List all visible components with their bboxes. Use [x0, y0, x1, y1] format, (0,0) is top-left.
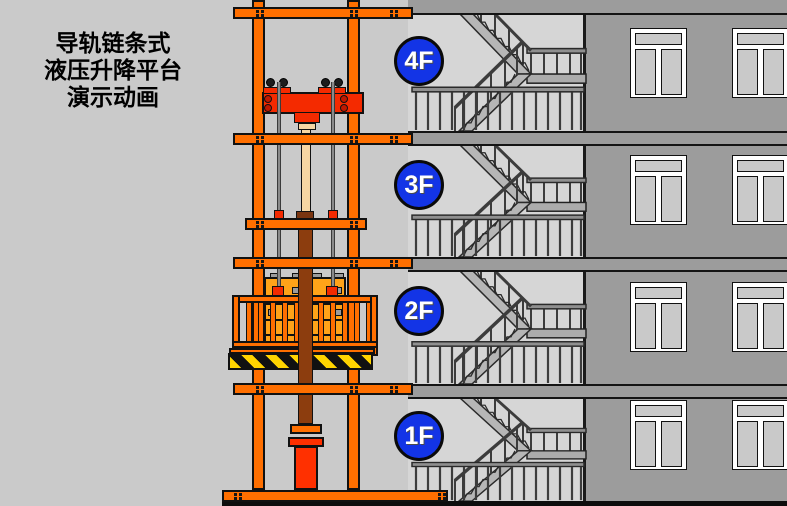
floor-badge-4f: 4F: [394, 36, 444, 86]
window: [630, 155, 687, 225]
floor-badge-label: 3F: [404, 171, 433, 200]
floor-slab: [408, 384, 787, 399]
window: [732, 28, 787, 98]
bolt-cluster: [350, 221, 353, 224]
floor-badge-3f: 3F: [394, 160, 444, 210]
mast-beam-2f: [233, 257, 413, 269]
bolt-cluster: [256, 221, 259, 224]
mast-base-beam: [222, 490, 448, 502]
mast-column-left: [252, 0, 265, 490]
mast-beam-top: [233, 7, 413, 19]
base-cylinder: [294, 446, 318, 490]
bolt-cluster: [350, 260, 353, 263]
chain-sprocket-icon: [321, 78, 330, 87]
beam-bolt: [340, 95, 348, 103]
window: [732, 400, 787, 470]
bolt-cluster: [438, 493, 441, 496]
window: [732, 155, 787, 225]
bolt-cluster: [256, 260, 259, 263]
floor-slab: [408, 0, 787, 15]
beam-bolt: [264, 95, 272, 103]
bolt-cluster: [350, 386, 353, 389]
window: [630, 400, 687, 470]
piston-flange: [298, 123, 316, 130]
mast-beam-mid: [245, 218, 367, 230]
floor-badge-label: 4F: [404, 47, 433, 76]
chain-anchor: [326, 286, 338, 296]
page-title: 导轨链条式 液压升降平台 演示动画: [18, 30, 208, 111]
floor-badge-2f: 2F: [394, 286, 444, 336]
bolt-cluster: [350, 10, 353, 13]
bolt-cluster: [350, 136, 353, 139]
floor-slab: [408, 257, 787, 272]
chain-sprocket-icon: [266, 78, 275, 87]
floor-badge-1f: 1F: [394, 411, 444, 461]
title-line-3: 演示动画: [18, 84, 208, 111]
bolt-cluster: [390, 260, 393, 263]
floor-slab: [408, 131, 787, 146]
piston-clamp: [294, 112, 320, 123]
bolt-cluster: [256, 10, 259, 13]
cylinder-base-clamp: [290, 424, 322, 434]
bolt-cluster: [256, 136, 259, 139]
floor-badge-label: 2F: [404, 297, 433, 326]
chain-sprocket-icon: [334, 78, 343, 87]
bolt-cluster: [390, 136, 393, 139]
bolt-cluster: [256, 386, 259, 389]
title-line-1: 导轨链条式: [18, 30, 208, 57]
mast-beam-3f: [233, 133, 413, 145]
scene: 4F 3F 2F 1F 导轨链条式 液压升降平台 演示动画: [0, 0, 787, 506]
mast-column-right: [347, 0, 360, 490]
window: [732, 282, 787, 352]
bolt-cluster: [234, 493, 237, 496]
chain-anchor: [272, 286, 284, 296]
beam-bolt: [264, 104, 272, 112]
title-line-2: 液压升降平台: [18, 57, 208, 84]
window: [630, 28, 687, 98]
floor-badge-label: 1F: [404, 422, 433, 451]
bolt-cluster: [390, 10, 393, 13]
beam-bolt: [340, 104, 348, 112]
mast-beam-1f: [233, 383, 413, 395]
bolt-cluster: [390, 386, 393, 389]
window: [630, 282, 687, 352]
